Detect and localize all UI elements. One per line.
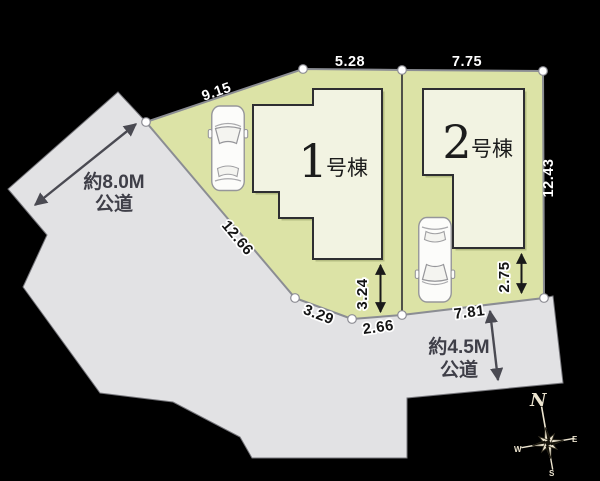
boundary-vertex-dot [539,67,548,76]
car-2-icon [415,218,454,303]
boundary-vertex-dot [398,66,407,75]
dim-e-edge: 12.43 [541,159,557,198]
compass-south-label: S [549,469,555,478]
west-road-type-label: 公道 [95,192,133,215]
car-1-icon [208,106,247,191]
compass-rose-icon: N E W S [514,390,579,478]
boundary-vertex-dot [142,118,151,127]
site-plan-drawing: 9.15 5.28 7.75 12.43 12.66 3.29 2.66 7.8… [0,0,600,481]
dim-plot1-setback: 3.24 [354,278,371,309]
dim-n-edge-plot1: 5.28 [335,54,365,70]
south-road-type-label: 公道 [440,358,478,381]
south-road-width-label: 約4.5M [428,335,489,358]
west-road-width-label: 約8.0M [83,170,144,193]
dim-n-edge-plot2: 7.75 [452,54,482,70]
site-plan-canvas: 9.15 5.28 7.75 12.43 12.66 3.29 2.66 7.8… [0,0,600,481]
boundary-vertex-dot [291,294,300,303]
building-2-number: 2 [442,115,471,169]
boundary-vertex-dot [348,315,357,324]
building-1-suffix: 号棟 [326,156,368,180]
compass-west-label: W [514,445,522,454]
boundary-vertex-dot [299,65,308,74]
building-2-suffix: 号棟 [471,137,513,161]
compass-north-label: N [529,390,548,411]
compass-east-label: E [572,435,578,444]
dim-plot2-setback: 2.75 [496,261,513,292]
boundary-vertex-dot [398,311,407,320]
boundary-vertex-dot [540,294,549,303]
building-1-number: 1 [298,134,327,188]
